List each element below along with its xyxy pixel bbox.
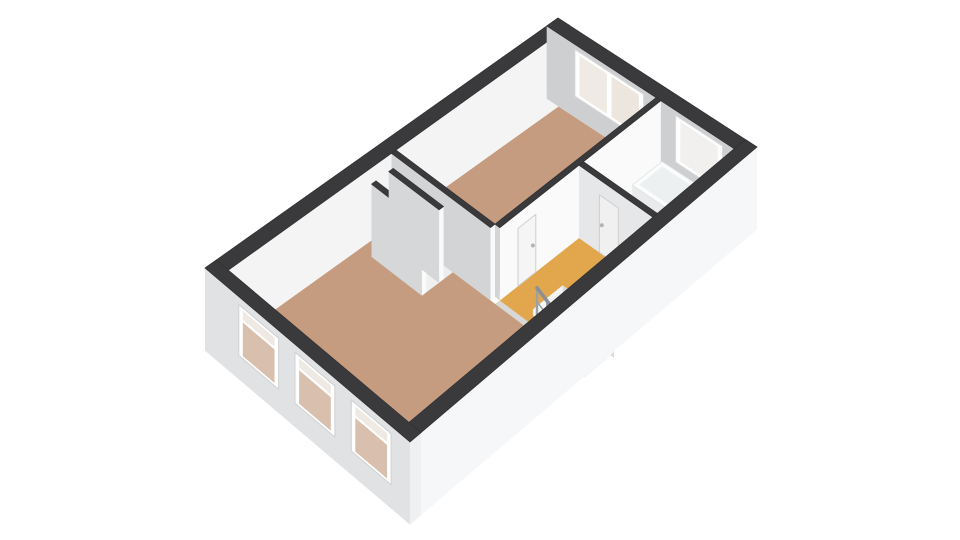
bedroom-door-handle [531, 244, 535, 248]
bathroom-door-handle [600, 223, 604, 227]
floor-plan-3d-render [0, 0, 960, 540]
floor-plan-page [0, 0, 960, 540]
